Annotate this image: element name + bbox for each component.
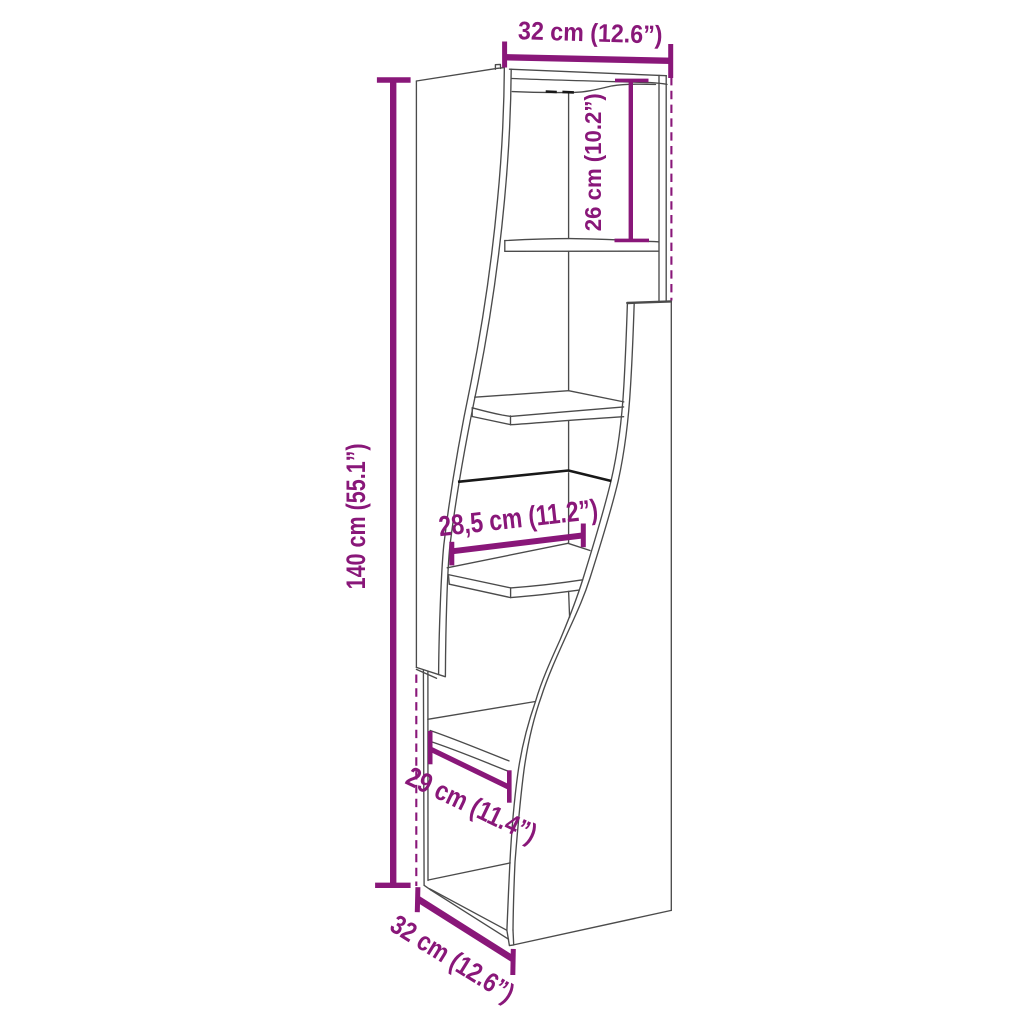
svg-text:26 cm (10.2”): 26 cm (10.2”) <box>580 93 606 231</box>
svg-text:140 cm (55.1”): 140 cm (55.1”) <box>341 443 371 589</box>
svg-text:32 cm (12.6”): 32 cm (12.6”) <box>518 17 663 50</box>
